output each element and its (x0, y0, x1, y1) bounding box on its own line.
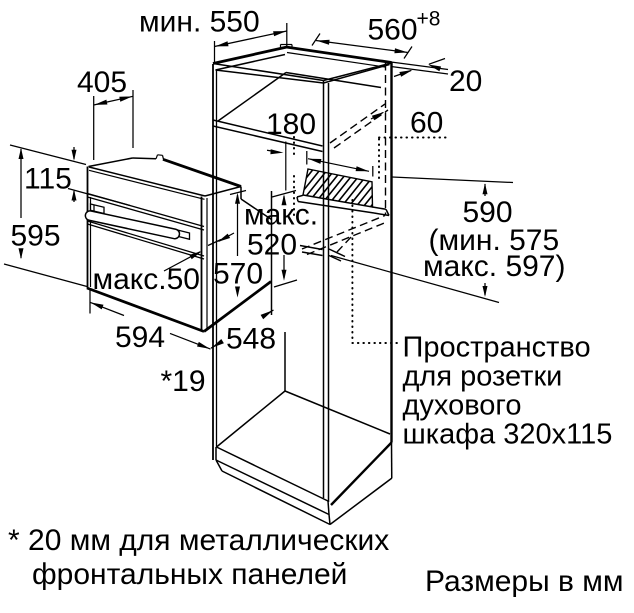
svg-text:макс.: макс. (244, 199, 318, 232)
svg-text:20: 20 (449, 65, 482, 98)
svg-text:595: 595 (11, 220, 61, 253)
svg-text:Пространство: Пространство (403, 332, 591, 364)
svg-text:180: 180 (266, 108, 316, 141)
svg-text:Размеры в мм: Размеры в мм (425, 565, 624, 598)
svg-text:594: 594 (115, 321, 165, 354)
svg-text:570: 570 (213, 258, 263, 291)
svg-text:60: 60 (410, 107, 443, 140)
svg-text:+8: +8 (417, 8, 441, 31)
svg-text:духового: духового (403, 390, 522, 422)
svg-text:макс.50: макс.50 (93, 263, 200, 296)
svg-text:макс. 597): макс. 597) (423, 250, 566, 283)
svg-text:мин. 550: мин. 550 (139, 6, 260, 39)
svg-text:фронтальных панелей: фронтальных панелей (32, 558, 347, 591)
svg-text:560: 560 (368, 14, 418, 47)
svg-text:405: 405 (77, 66, 127, 99)
svg-text:* 20 мм для металлических: * 20 мм для металлических (8, 524, 389, 557)
svg-text:115: 115 (24, 163, 72, 196)
svg-text:*19: *19 (161, 365, 206, 398)
svg-text:шкафа 320x115: шкафа 320x115 (403, 419, 613, 451)
svg-text:для розетки: для розетки (403, 361, 563, 393)
svg-text:548: 548 (226, 323, 276, 356)
